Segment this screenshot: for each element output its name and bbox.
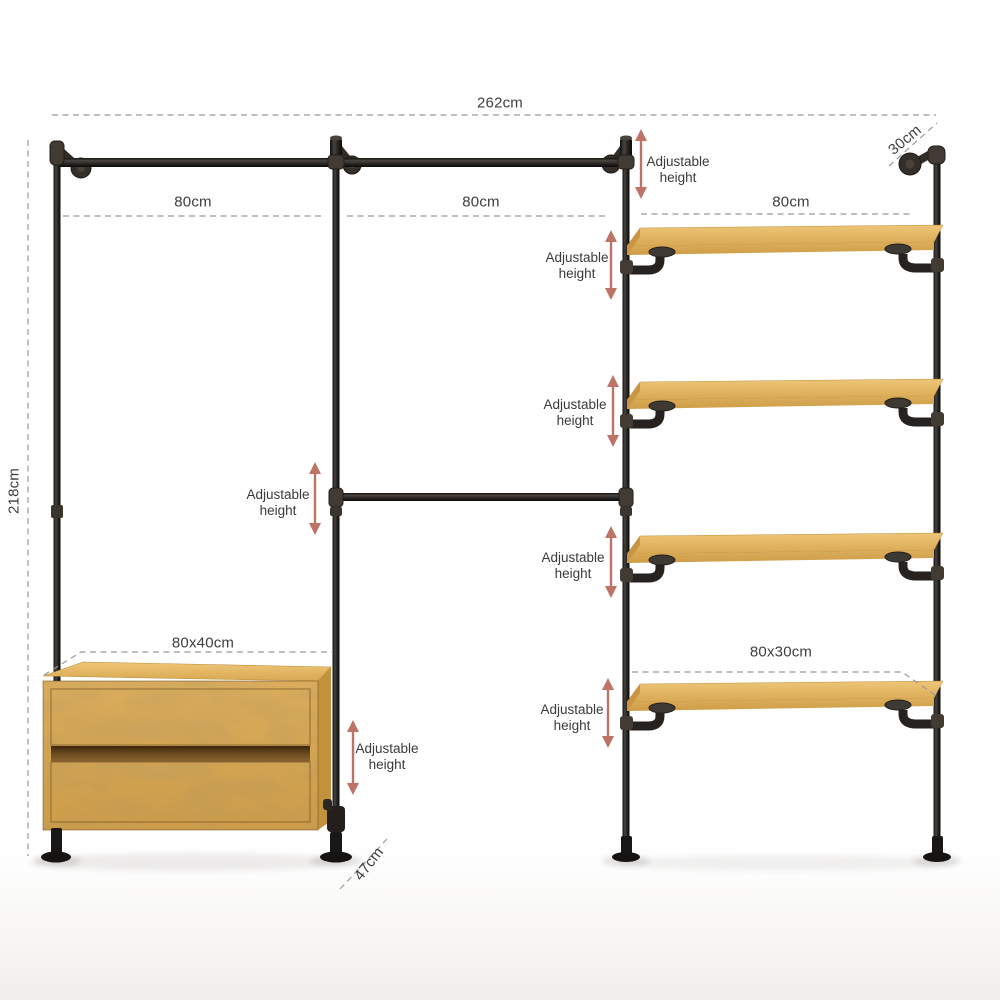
- furniture-render: [0, 0, 1000, 1000]
- shelf-size-label: 80x30cm: [750, 644, 812, 661]
- bay2-width-label: 80cm: [462, 194, 499, 211]
- shelf-flange: [885, 244, 911, 254]
- product-dimension-diagram: 262cm 30cm 80cm 80cm 80cm 218cm 80x40cm …: [0, 0, 1000, 1000]
- shelf-4: [620, 681, 944, 730]
- adjustable-label-mid-rail: Adjustableheight: [246, 487, 309, 519]
- shelf-flange: [649, 555, 675, 565]
- dresser: [43, 662, 345, 832]
- bay1-width-label: 80cm: [174, 194, 211, 211]
- shelf-elbow: [630, 711, 660, 726]
- drawer-gap: [51, 746, 310, 762]
- shelf-elbow: [903, 408, 934, 422]
- adjustable-arrow-mid-rail: [309, 462, 321, 535]
- middle-clothes-rail: [333, 493, 629, 501]
- foot-flange: [923, 852, 951, 862]
- adjustable-arrow-top-rail: [635, 129, 647, 199]
- adjustable-arrow-shelf-2: [607, 375, 619, 447]
- coupling: [51, 505, 63, 518]
- rail-tee: [618, 155, 634, 169]
- shelf-flange: [649, 703, 675, 713]
- shelf-2: [620, 379, 944, 428]
- adjustable-label-shelf-4: Adjustableheight: [540, 702, 603, 734]
- foot-stem: [330, 832, 342, 854]
- bay3-width-label: 80cm: [772, 194, 809, 211]
- shelf-elbow: [903, 254, 934, 268]
- adjustable-label-shelf-1: Adjustableheight: [545, 250, 608, 282]
- corner-elbow: [50, 141, 64, 165]
- shelf-flange: [885, 552, 911, 562]
- adjustable-label-dresser: Adjustableheight: [355, 741, 418, 773]
- shelf-flange: [885, 700, 911, 710]
- adjustable-label-shelf-2: Adjustableheight: [543, 397, 606, 429]
- adjustable-arrows: [309, 129, 647, 795]
- coupling: [620, 507, 632, 516]
- foot-flange: [41, 852, 71, 863]
- shelf-flange: [649, 247, 675, 257]
- foot-stem: [621, 836, 632, 854]
- foot-stem: [932, 836, 943, 854]
- adjustable-arrow-shelf-3: [605, 526, 617, 598]
- shelf-elbow: [903, 562, 934, 576]
- shelf-elbow: [903, 710, 934, 724]
- rail-tee: [328, 155, 344, 169]
- height-label: 218cm: [6, 468, 23, 514]
- adjustable-arrow-shelf-4: [602, 678, 614, 748]
- rail-tee: [619, 488, 633, 507]
- shelf-flange: [649, 401, 675, 411]
- coupling: [330, 507, 342, 516]
- shelf-elbow: [630, 563, 660, 578]
- mid-fittings: [51, 488, 633, 518]
- shelf-flange: [885, 398, 911, 408]
- adjustable-label-top-rail: Adjustableheight: [646, 154, 709, 186]
- floor: [0, 842, 1000, 1000]
- foot-flange: [612, 852, 640, 862]
- adjustable-label-shelf-3: Adjustableheight: [541, 550, 604, 582]
- dresser-size-label: 80x40cm: [172, 635, 234, 652]
- foot-flange: [320, 852, 352, 863]
- shelf-elbow: [630, 255, 660, 270]
- corner-elbow: [928, 146, 945, 164]
- foot-stem: [51, 828, 62, 854]
- shelf-elbow: [630, 409, 660, 424]
- shelf-3: [620, 533, 944, 582]
- shelf-1: [620, 225, 944, 274]
- total-width-label: 262cm: [477, 95, 523, 112]
- rail-tee: [329, 488, 343, 507]
- dresser-top: [43, 662, 331, 681]
